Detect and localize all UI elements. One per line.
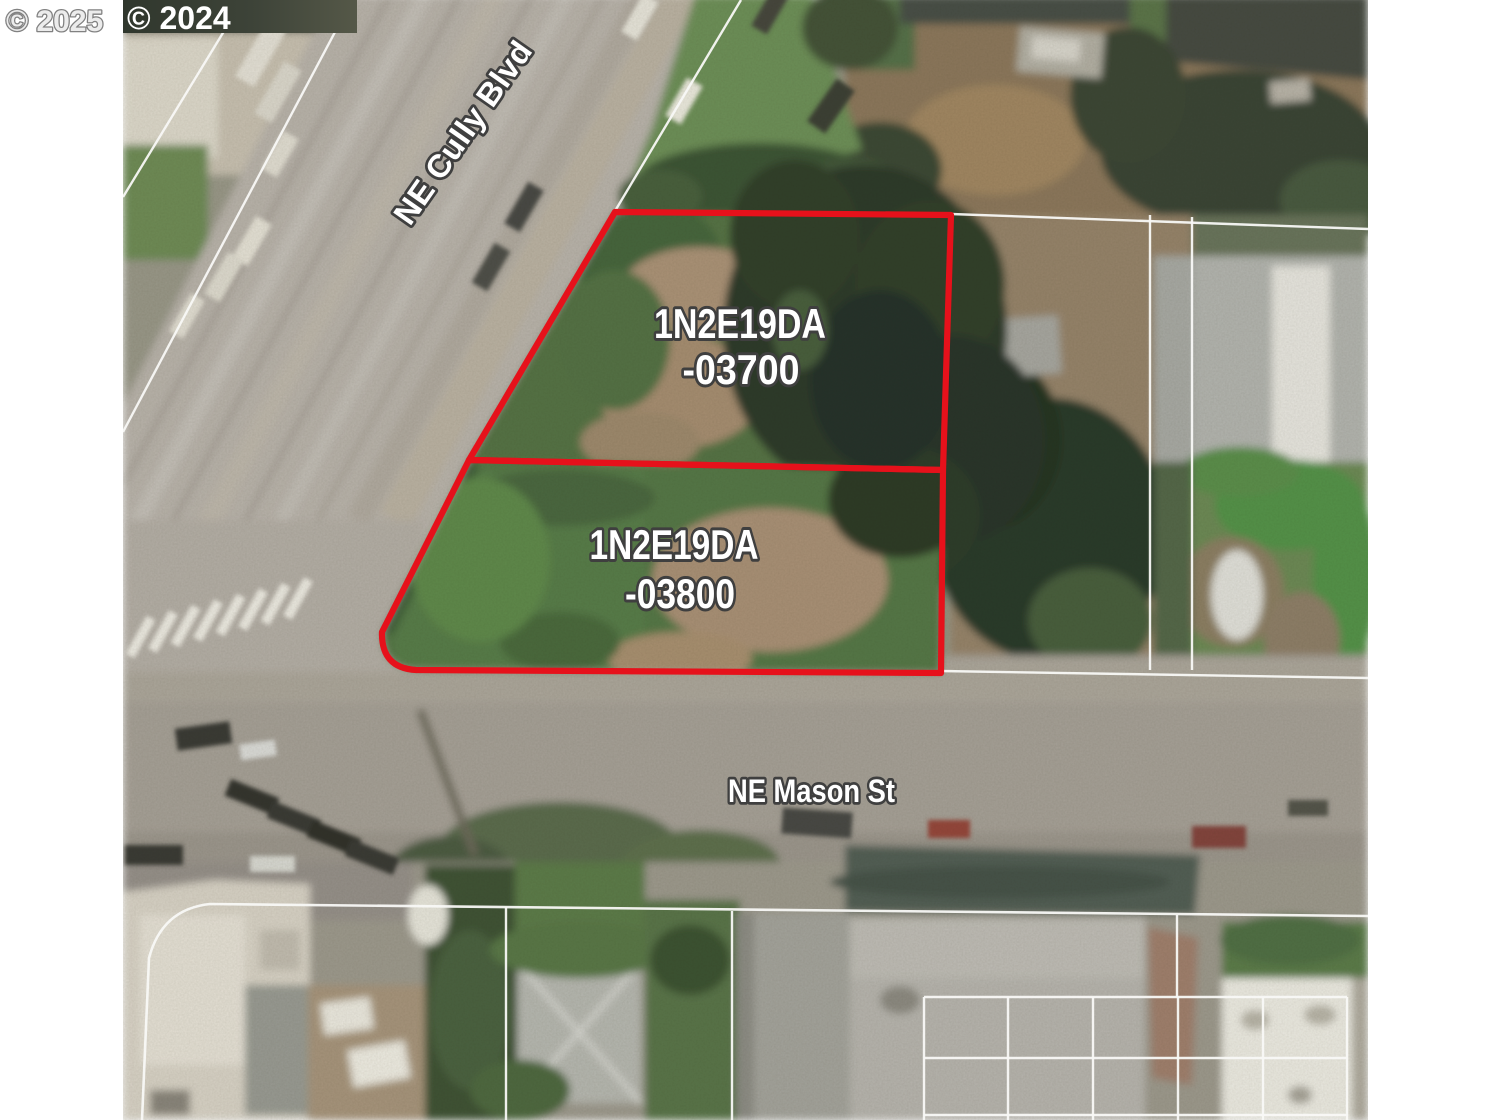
svg-text:-03800: -03800: [625, 570, 735, 617]
svg-text:-03700: -03700: [683, 346, 800, 393]
svg-text:1N2E19DA: 1N2E19DA: [654, 300, 826, 347]
svg-text:© 2025: © 2025: [6, 5, 103, 38]
svg-text:NE Mason St: NE Mason St: [728, 773, 895, 809]
svg-text:© 2024: © 2024: [127, 0, 231, 36]
svg-text:1N2E19DA: 1N2E19DA: [590, 521, 759, 568]
